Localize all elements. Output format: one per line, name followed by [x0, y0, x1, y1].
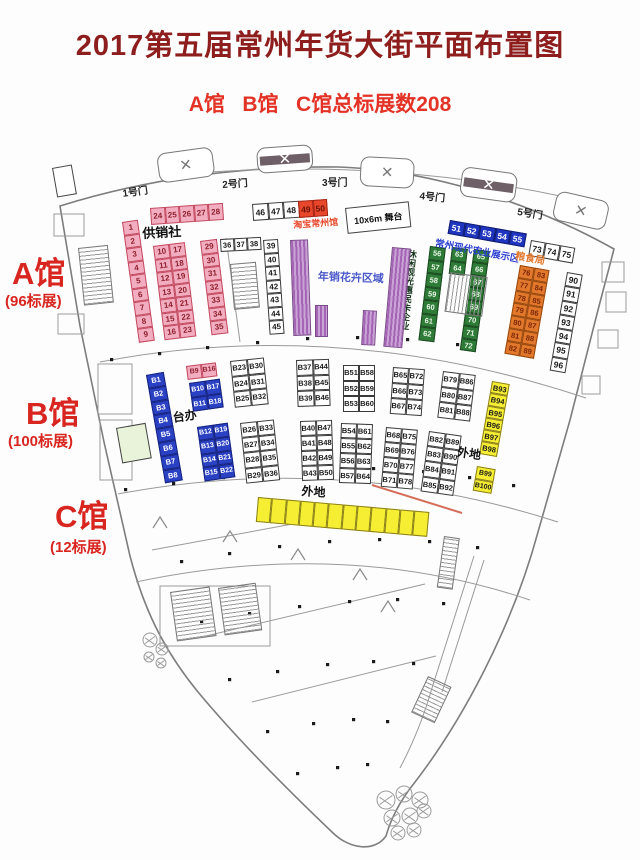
booth-b66: B66 — [391, 382, 408, 399]
booth-b45: B45 — [313, 374, 330, 390]
booth-b25: B25 — [233, 390, 252, 407]
booth-b49: B49 — [317, 450, 334, 466]
booth-b51: B51 — [343, 365, 359, 381]
booth-b29: B29 — [245, 467, 263, 484]
booth-44: 44 — [268, 306, 284, 321]
booth-49: 49 — [298, 200, 314, 218]
booth-62: 62 — [418, 326, 436, 341]
booth-38: 38 — [247, 237, 261, 251]
booth-b61: B61 — [356, 424, 373, 440]
booth-b67: B67 — [390, 398, 407, 415]
b-col-b99-b100: B99B100 — [473, 466, 496, 494]
booth-b43: B43 — [302, 465, 319, 481]
booth-96: 96 — [550, 356, 568, 373]
booth-b54: B54 — [340, 423, 357, 439]
booth-50: 50 — [312, 199, 328, 217]
hall-c-count: (12标展) — [50, 540, 107, 556]
b-grid-b54-b64: B54B61B55B62B56B63B57B64 — [339, 423, 373, 484]
booth-b72: B72 — [408, 368, 425, 385]
booth-b62: B62 — [356, 439, 373, 455]
booth-b37: B37 — [296, 359, 313, 375]
flower-strip-3 — [361, 310, 377, 346]
a-col-39-45: 39404142434445 — [263, 239, 285, 334]
taobao-label: 淘宝常州馆 — [293, 218, 339, 231]
hall-a-count: (96标展) — [5, 294, 62, 310]
booth-23: 23 — [179, 322, 197, 337]
stair-7 — [437, 536, 460, 590]
a-row-46-48: 464748 — [252, 201, 300, 221]
booth-b68: B68 — [385, 427, 402, 443]
booth-b44: B44 — [312, 359, 329, 375]
gate-3-label: 3号门 — [322, 179, 348, 190]
stair-1 — [78, 245, 114, 306]
a-row-49-50: 4950 — [298, 199, 328, 218]
entrance-x-icon: ✕ — [573, 202, 589, 219]
booth-b57: B57 — [339, 468, 356, 484]
booth-b70: B70 — [382, 457, 399, 473]
b-grid-b65-b74: B65B72B66B73B67B74 — [390, 367, 425, 416]
booth-b22: B22 — [218, 464, 235, 480]
booth-9: 9 — [137, 327, 155, 343]
a-row-24-28: 2425262728 — [150, 203, 224, 225]
booth-b30: B30 — [247, 357, 266, 374]
b-grid-b37-b46: B37B44B38B45B39B46 — [296, 359, 331, 407]
entrance-2: ✕ — [256, 144, 314, 174]
booth-36: 36 — [220, 238, 234, 252]
waidi-c-label: 外地 — [301, 485, 326, 499]
booth-41: 41 — [265, 266, 281, 281]
a-col-56-62: 56575859606162 — [418, 246, 445, 342]
booth-55: 55 — [509, 231, 527, 247]
booth-25: 25 — [164, 206, 180, 224]
kiosk-left — [52, 165, 77, 198]
stage-box: 10x6m 舞台 — [345, 201, 411, 234]
booth-b42: B42 — [301, 450, 318, 466]
hall-b-label: B馆 — [26, 398, 79, 431]
booth-b48: B48 — [317, 435, 334, 451]
stair-3 — [444, 272, 487, 317]
booth-37: 37 — [233, 238, 247, 252]
booth-28: 28 — [208, 203, 224, 221]
booth-b81: B81 — [437, 402, 455, 419]
booth-b63: B63 — [355, 454, 372, 470]
booth-43: 43 — [267, 293, 283, 308]
booth-b53: B53 — [343, 396, 359, 412]
booth-b56: B56 — [339, 453, 356, 469]
booth-26: 26 — [179, 205, 195, 223]
booth-b76: B76 — [399, 443, 416, 459]
a-row-36-38: 363738 — [220, 237, 261, 252]
hall-c-label: C馆 — [55, 501, 108, 534]
booth-b73: B73 — [407, 384, 424, 401]
a-col-90-96: 90919293949596 — [550, 272, 583, 373]
booth-24: 24 — [150, 207, 166, 225]
booth-b41: B41 — [301, 435, 318, 451]
booth-47: 47 — [267, 202, 284, 220]
booth-b58: B58 — [359, 365, 375, 381]
taiban-label: 台办 — [172, 409, 198, 425]
booth-75: 75 — [558, 245, 576, 263]
booth-b16: B16 — [201, 362, 218, 377]
c-strip — [256, 497, 429, 537]
booth-16: 16 — [163, 324, 181, 339]
booth-b75: B75 — [401, 428, 418, 444]
waidi-right-label: 外地 — [456, 446, 482, 462]
booth-b36: B36 — [262, 465, 280, 482]
booth-72: 72 — [460, 338, 478, 353]
booth-b47: B47 — [316, 420, 333, 436]
booth-b39: B39 — [297, 390, 314, 406]
booth-b50: B50 — [318, 465, 335, 481]
booth-48: 48 — [283, 201, 300, 219]
flower-strip-2 — [315, 305, 328, 337]
gongxiaoshe-label: 供销社 — [142, 225, 182, 241]
booth-39: 39 — [263, 239, 279, 254]
booth-b18: B18 — [206, 393, 223, 410]
stair-4 — [170, 586, 217, 641]
booth-27: 27 — [193, 204, 209, 222]
booth-b77: B77 — [398, 458, 415, 474]
gate-5-label: 5号门 — [516, 208, 543, 222]
booth-b74: B74 — [406, 399, 423, 416]
hall-b-count: (100标展) — [8, 434, 73, 450]
b-grid-b23-b32: B23B30B24B31B25B32 — [230, 357, 269, 407]
gate-1-label: 1号门 — [122, 186, 149, 200]
entrance-1: ✕ — [156, 146, 216, 184]
booth-b15: B15 — [203, 466, 220, 482]
booth-40: 40 — [264, 252, 280, 267]
b-grid-b26-b36: B26B33B27B34B28B35B29B36 — [240, 419, 280, 483]
b-grid-b79-b88: B79B86B80B87B81B88 — [437, 371, 475, 421]
entrance-x-icon: ✕ — [179, 157, 194, 174]
b-row-b9-b16: B9B16 — [186, 362, 217, 379]
booth-unnumbered — [412, 511, 428, 537]
b-col-b1-b8: B1B2B3B4B5B6B7B8 — [146, 372, 183, 484]
booth-b9: B9 — [186, 364, 203, 379]
booth-b8: B8 — [163, 467, 183, 484]
booth-b69: B69 — [383, 442, 400, 458]
booth-45: 45 — [269, 320, 285, 335]
flower-zone-label: 年销花卉区域 — [318, 272, 384, 286]
booth-b55: B55 — [340, 438, 357, 454]
stair-2 — [230, 262, 260, 310]
entrance-x-icon: ✕ — [278, 151, 292, 167]
a-grid-76-89: 7683778478857986808781888289 — [504, 265, 549, 358]
b-grid-b40-b50: B40B47B41B48B42B49B43B50 — [300, 420, 334, 481]
plan-layer: 1234567892425262728101711181219132014211… — [0, 0, 640, 860]
booth-b92: B92 — [437, 478, 455, 495]
booth-b40: B40 — [300, 420, 317, 436]
booth-b46: B46 — [314, 390, 331, 406]
b-grid-b82-b92: B82B89B83B90B84B91B85B92 — [421, 431, 462, 496]
b-grid-b51-b60: B51B58B52B59B53B60 — [343, 365, 375, 412]
room-green — [116, 423, 152, 464]
entrance-5: ✕ — [551, 190, 610, 231]
stair-5 — [218, 583, 262, 636]
entrance-4: ✕ — [459, 166, 519, 204]
entrance-x-icon: ✕ — [380, 165, 393, 181]
booth-b88: B88 — [454, 404, 472, 421]
booth-b98: B98 — [479, 442, 499, 457]
booth-b64: B64 — [355, 469, 372, 485]
gate-2-label: 2号门 — [222, 179, 248, 191]
entrance-3: ✕ — [359, 156, 414, 189]
booth-b60: B60 — [359, 396, 375, 412]
booth-b38: B38 — [297, 375, 314, 391]
entrance-x-icon: ✕ — [481, 176, 496, 193]
booth-b65: B65 — [392, 367, 409, 384]
b-grid-b68-b78: B68B75B69B76B70B77B71B78 — [381, 427, 418, 490]
a-col-29-35: 29303132333435 — [200, 239, 228, 335]
booth-b32: B32 — [250, 388, 269, 405]
booth-46: 46 — [252, 203, 269, 221]
gate-4-label: 4号门 — [419, 192, 446, 205]
booth-b71: B71 — [381, 472, 398, 488]
booth-b52: B52 — [343, 381, 359, 397]
hall-a-label: A馆 — [12, 258, 65, 291]
a-grid-10-23: 1017111812191320142115221623 — [153, 242, 196, 340]
booth-b78: B78 — [397, 473, 414, 489]
stair-6 — [411, 676, 451, 723]
b-col-b93-b98: B93B94B95B96B97B98 — [479, 381, 510, 457]
booth-b100: B100 — [473, 478, 494, 494]
booth-89: 89 — [519, 343, 536, 358]
booth-42: 42 — [266, 279, 282, 294]
b-grid-b12-b22: B12B19B13B20B14B21B15B22 — [197, 423, 235, 482]
flower-strip-1 — [290, 239, 311, 336]
booth-35: 35 — [210, 319, 229, 334]
booth-b59: B59 — [359, 381, 375, 397]
